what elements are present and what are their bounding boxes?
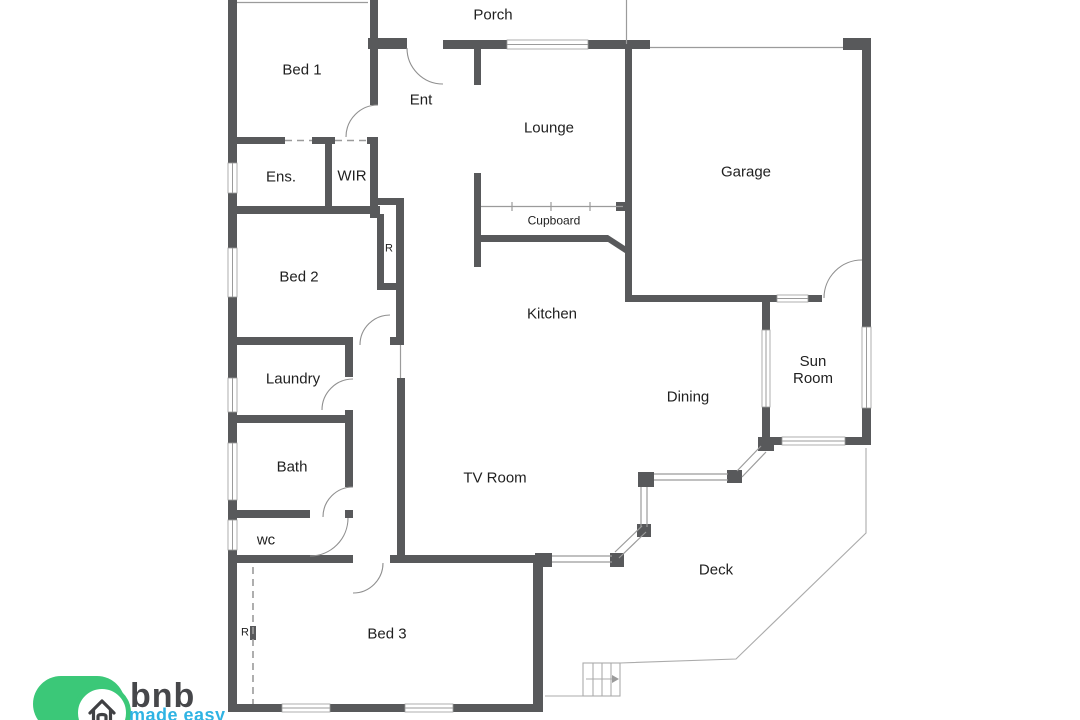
window (228, 248, 237, 297)
logo-circle (73, 684, 131, 720)
window (507, 40, 588, 49)
room-label-deck: Deck (699, 562, 733, 579)
room-label-sun-room: Sun Room (780, 353, 846, 387)
bnb-logo: bnb made easy (33, 676, 293, 720)
house-icon (78, 689, 126, 720)
bed1-door-arc (346, 105, 378, 137)
bed3-door-arc (353, 563, 383, 593)
window (228, 443, 237, 500)
stairs (583, 663, 620, 696)
room-label-cupboard: Cupboard (528, 213, 581, 230)
room-label-bed3: Bed 3 (367, 626, 406, 643)
room-label-laundry: Laundry (266, 371, 320, 388)
room-label-porch: Porch (473, 7, 512, 24)
room-label-lounge: Lounge (524, 120, 574, 137)
window (405, 704, 453, 712)
room-label-dining: Dining (667, 389, 710, 406)
entry-door-arc (407, 48, 443, 84)
laundry-door-arc (322, 379, 353, 410)
room-label-ent: Ent (410, 92, 433, 109)
room-label-robe-bed3: R (241, 625, 249, 642)
room-label-bath: Bath (277, 459, 308, 476)
wc-door-arc (310, 518, 348, 556)
room-label-bed2: Bed 2 (279, 269, 318, 286)
window (228, 163, 237, 193)
room-label-garage: Garage (721, 164, 771, 181)
room-label-robe: R (385, 241, 393, 258)
floorplan-page: Porch Bed 1 Ent Lounge Garage Ens. WIR R… (0, 0, 1080, 720)
window (228, 378, 237, 412)
room-label-wir: WIR (337, 168, 366, 185)
room-label-wc: wc (257, 532, 275, 549)
stairs-arrow-head (612, 675, 619, 683)
bay-windows (552, 446, 766, 562)
logo-tagline-text: made easy (129, 705, 226, 720)
walls (228, 0, 871, 712)
window (762, 330, 770, 407)
room-label-kitchen: Kitchen (527, 306, 577, 323)
doors (310, 48, 862, 593)
window (777, 295, 808, 302)
room-label-ensuite: Ens. (266, 169, 296, 186)
room-label-bed1: Bed 1 (282, 62, 321, 79)
window (862, 327, 871, 408)
bed2-door-arc (360, 315, 390, 345)
floorplan-drawing (0, 0, 1080, 720)
window (782, 437, 845, 445)
room-label-tv-room: TV Room (463, 470, 526, 487)
window (228, 520, 237, 550)
garage-door-arc (824, 260, 862, 298)
